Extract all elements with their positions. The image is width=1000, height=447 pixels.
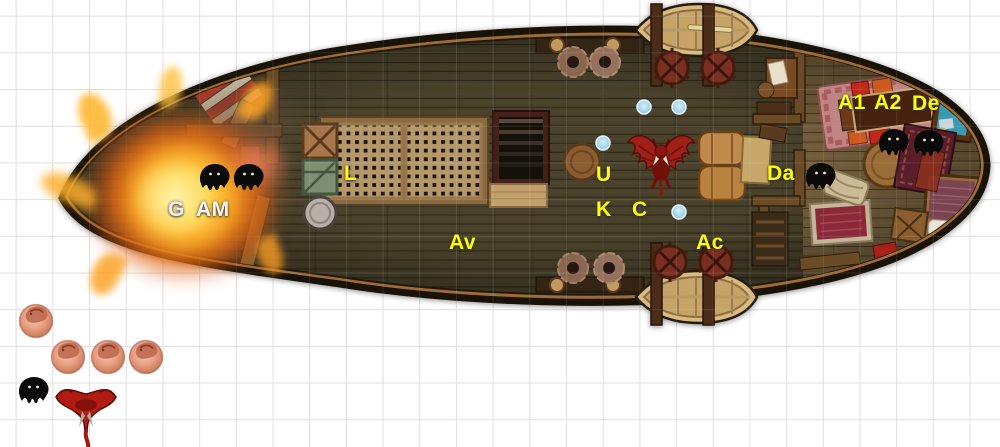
map-label-c: C — [632, 199, 648, 220]
map-label-av: Av — [449, 232, 476, 253]
map-label-u: U — [596, 164, 612, 185]
map-label-a1: A1 — [838, 92, 866, 113]
map-labels: G AM L Av U K C Ac Da A1 A2 De — [0, 0, 1000, 447]
map-label-l: L — [344, 163, 357, 184]
map-label-de: De — [912, 93, 940, 114]
map-label-a2: A2 — [874, 92, 902, 113]
map-label-am: AM — [196, 199, 230, 220]
map-label-g: G — [168, 199, 185, 220]
map-label-k: K — [596, 199, 612, 220]
vtt-map-canvas: { "scene": { "kind": "virtual-tabletop s… — [0, 0, 1000, 447]
map-label-da: Da — [767, 163, 795, 184]
map-label-ac: Ac — [696, 232, 724, 253]
